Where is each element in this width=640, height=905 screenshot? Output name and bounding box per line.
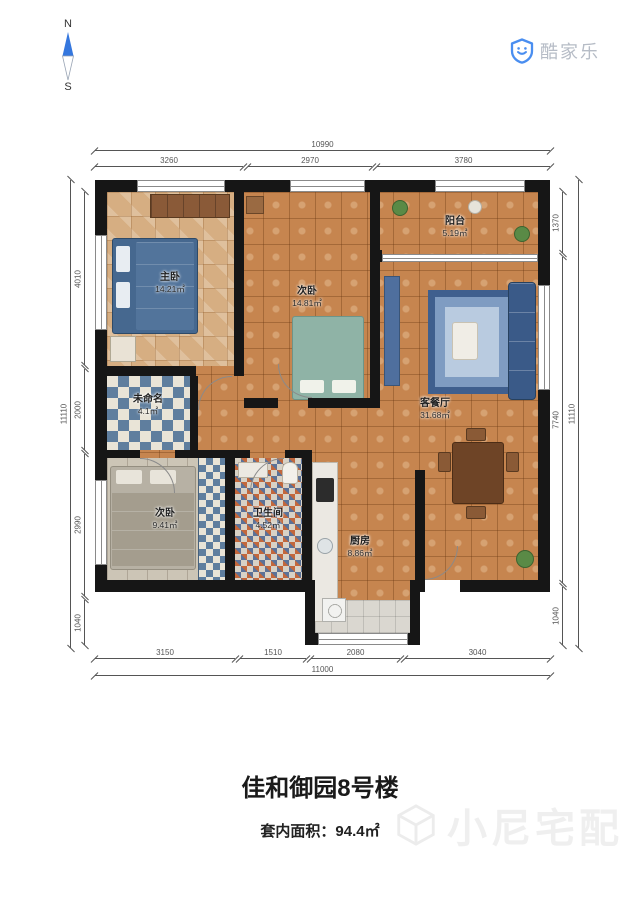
- room-label-bedroom2: 次卧 14.81㎡: [272, 286, 342, 309]
- dim-top-overall: 10990: [95, 150, 550, 151]
- room-label-balcony: 阳台 5.19㎡: [420, 216, 490, 239]
- room-label-master: 主卧 14.21㎡: [135, 272, 205, 295]
- dining-chair: [466, 506, 486, 519]
- bed-pillow: [116, 282, 130, 308]
- compass-north-label: N: [52, 18, 84, 31]
- wall-master-divider: [234, 192, 244, 376]
- wall-bottom-right-a: [420, 580, 425, 592]
- dim-label: 4010: [74, 270, 83, 288]
- dim-bottom-seg2: 1510: [240, 658, 306, 659]
- dim-label: 1370: [552, 214, 561, 232]
- dim-label: 3780: [377, 156, 550, 165]
- master-dresser: [110, 336, 136, 362]
- window-master-top: [137, 180, 225, 192]
- room-name: 次卧: [130, 508, 200, 520]
- dining-table: [452, 442, 504, 504]
- dining-chair: [506, 452, 519, 472]
- dim-left-seg3: 2990: [84, 454, 85, 596]
- dim-label: 11000: [95, 665, 550, 674]
- dim-label: 2080: [311, 648, 400, 657]
- room-label-bathroom: 卫生间 4.52㎡: [233, 508, 303, 531]
- floorplan-page: N S 酷家乐: [0, 0, 640, 905]
- compass-needle-icon: [60, 31, 76, 81]
- wall-bedroom2-right: [370, 192, 380, 408]
- wall-balcony-stub: [370, 250, 382, 262]
- room-name: 阳台: [420, 216, 490, 228]
- room-area: 8.86㎡: [325, 548, 395, 559]
- dim-right-overall: 11110: [578, 180, 579, 648]
- wall-master-bottom: [107, 366, 196, 376]
- room-area: 5.19㎡: [420, 228, 490, 239]
- wall-bedroom2-bottom-b: [308, 398, 370, 408]
- room-name: 主卧: [135, 272, 205, 284]
- dim-bottom-overall: 11000: [95, 675, 550, 676]
- plant: [516, 550, 534, 568]
- smile-shield-icon: [510, 38, 534, 64]
- room-name: 未命名: [113, 394, 183, 406]
- dim-top-seg2: 2970: [248, 166, 372, 167]
- room-label-unnamed: 未命名 4.1㎡: [113, 394, 183, 417]
- dim-bottom-seg4: 3040: [405, 658, 550, 659]
- dim-left-overall: 11110: [70, 180, 71, 648]
- window-bedroom2-top: [290, 180, 365, 192]
- window-living-right: [538, 285, 550, 390]
- window-balcony-top: [435, 180, 525, 192]
- dim-left-seg2: 2000: [84, 369, 85, 450]
- bed-pillow: [116, 246, 130, 272]
- bed-pillow: [116, 470, 142, 484]
- window-master-left: [95, 235, 107, 330]
- dim-label: 10990: [95, 140, 550, 149]
- patterned-wardrobe: [198, 458, 226, 580]
- wall-bedroom3-top-a: [107, 450, 140, 458]
- wall-bottom-left: [95, 580, 305, 592]
- window-bedroom3-left: [95, 480, 107, 565]
- room-name: 次卧: [272, 286, 342, 298]
- room-label-bedroom3: 次卧 9.41㎡: [130, 508, 200, 531]
- room-label-kitchen: 厨房 8.86㎡: [325, 536, 395, 559]
- dim-bottom-seg3: 2080: [311, 658, 400, 659]
- stove: [316, 478, 334, 502]
- balcony-table: [468, 200, 482, 214]
- window-service-bottom: [318, 633, 408, 645]
- wall-unnamed-right: [190, 376, 198, 450]
- room-area: 31.68㎡: [400, 410, 470, 421]
- nightstand: [246, 196, 264, 214]
- glass-door-balcony: [382, 254, 538, 262]
- wall-bedroom3-top-b: [175, 450, 250, 458]
- wall-bedroom2-bottom-a: [244, 398, 278, 408]
- dim-left-seg1: 4010: [84, 192, 85, 365]
- toilet: [282, 462, 298, 484]
- room-label-living-dining: 客餐厅 31.68㎡: [400, 398, 470, 421]
- room-name: 厨房: [325, 536, 395, 548]
- dim-label: 3150: [95, 648, 235, 657]
- dining-chair: [438, 452, 451, 472]
- room-name: 卫生间: [233, 508, 303, 520]
- dim-right-seg1: 1370: [562, 192, 563, 253]
- tv-cabinet: [384, 276, 400, 386]
- dim-label: 1040: [552, 607, 561, 625]
- room-area: 4.1㎡: [113, 406, 183, 417]
- room-name: 客餐厅: [400, 398, 470, 410]
- plant: [514, 226, 530, 242]
- interior-area-line: 套内面积：94.4㎡: [0, 820, 640, 841]
- dim-top-seg3: 3780: [377, 166, 550, 167]
- wall-bottom-right-b: [460, 580, 550, 592]
- dim-label: 11110: [60, 404, 69, 424]
- dim-right-seg3: 1040: [562, 587, 563, 645]
- compass-south-label: S: [52, 81, 84, 94]
- dim-top-seg1: 3260: [95, 166, 243, 167]
- building-title: 佳和御园8号楼: [0, 768, 640, 803]
- dim-label: 3040: [405, 648, 550, 657]
- dim-label: 1510: [240, 648, 306, 657]
- wall-right: [538, 192, 550, 592]
- plant: [392, 200, 408, 216]
- area-label: 套内面积：: [260, 823, 335, 840]
- brand-name: 酷家乐: [540, 38, 600, 64]
- washing-machine: [322, 598, 346, 622]
- sofa: [508, 282, 536, 400]
- wall-kitchen-right: [415, 470, 425, 580]
- dim-label: 3260: [95, 156, 243, 165]
- dim-label: 1040: [74, 614, 83, 632]
- room-area: 14.21㎡: [135, 284, 205, 295]
- dining-chair: [466, 428, 486, 441]
- dim-label: 2990: [74, 516, 83, 534]
- dim-bottom-seg1: 3150: [95, 658, 235, 659]
- dim-label: 11110: [568, 404, 577, 424]
- bed-pillow: [332, 380, 356, 393]
- wall-bathroom-right: [302, 450, 312, 580]
- room-area: 4.52㎡: [233, 520, 303, 531]
- dim-label: 2000: [74, 401, 83, 419]
- dim-left-seg4: 1040: [84, 600, 85, 645]
- coffee-table: [452, 322, 478, 360]
- compass: N S: [52, 18, 84, 94]
- master-wardrobe: [150, 194, 230, 218]
- dim-right-seg2: 7740: [562, 257, 563, 583]
- room-area: 14.81㎡: [272, 298, 342, 309]
- kujiale-logo: 酷家乐: [510, 38, 600, 64]
- dim-label: 7740: [552, 411, 561, 429]
- room-area: 9.41㎡: [130, 520, 200, 531]
- dim-label: 2970: [248, 156, 372, 165]
- area-value: 94.4㎡: [335, 823, 379, 840]
